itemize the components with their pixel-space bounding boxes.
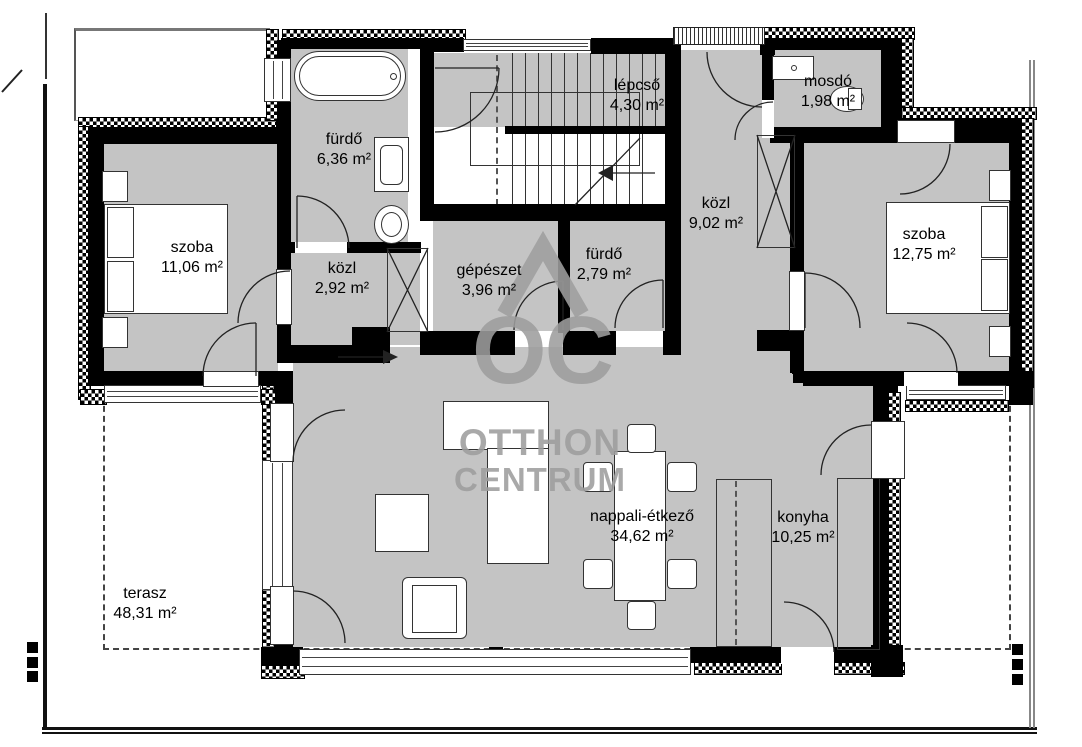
nightstand-icon [102, 171, 128, 202]
door-frame [897, 120, 955, 143]
window [906, 385, 1006, 400]
plan-graphic: nappali-étkező [590, 507, 694, 527]
window [299, 649, 691, 675]
room-label-lepcso: lépcső4,30 m² [610, 76, 664, 116]
room-label-kozl-2: közl2,92 m² [315, 259, 369, 299]
insulation-hatch [888, 392, 901, 424]
plan-graphic: konyha [771, 508, 834, 528]
pillow-icon [107, 261, 134, 312]
carport-area [74, 28, 270, 121]
plan-graphic: terasz [113, 584, 176, 604]
room-label-gepeszet: gépészet3,96 m² [457, 261, 522, 301]
pillow-icon [981, 259, 1008, 311]
pillow-icon [981, 206, 1008, 258]
plan-graphic: fürdő [577, 245, 631, 265]
chair-icon [667, 462, 697, 492]
wall-segment [663, 331, 681, 355]
wall-segment [420, 38, 464, 52]
plan-graphic: 11,06 m² [161, 258, 223, 278]
room-label-terasz: terasz48,31 m² [113, 584, 176, 624]
wall-segment [591, 38, 675, 54]
plan-graphic: 48,31 m² [113, 604, 176, 624]
wall-segment [420, 204, 681, 221]
door-gap [295, 242, 347, 253]
pillow-icon [107, 207, 134, 258]
property-line-bottom-2 [42, 732, 1037, 734]
plan-graphic: fürdő [317, 130, 371, 150]
plan-graphic: 3,96 m² [457, 281, 522, 301]
section-marker [1012, 659, 1023, 670]
entry-door [673, 27, 765, 45]
door-gap [781, 648, 834, 664]
faucet-icon [390, 73, 397, 80]
wall-segment [277, 345, 390, 363]
door-frame [871, 421, 905, 479]
plan-graphic: gépészet [457, 261, 522, 281]
washing-machine-inner [380, 145, 403, 185]
room-label-szoba-1: szoba11,06 m² [161, 238, 223, 278]
toilet-inner [381, 212, 402, 237]
chair-icon [627, 601, 656, 630]
plan-graphic: szoba [161, 238, 223, 258]
wardrobe-icon [757, 135, 795, 248]
wall-segment [690, 647, 781, 663]
window [264, 58, 291, 102]
room-label-konyha: konyha10,25 m² [771, 508, 834, 548]
watermark-oc: OC [472, 296, 612, 406]
door-frame [270, 586, 294, 645]
window [262, 460, 293, 590]
terrace-door-frame [203, 371, 259, 387]
plan-graphic: közl [689, 194, 743, 214]
insulation-hatch [1021, 118, 1034, 388]
plan-graphic [2, 70, 22, 92]
chair-icon [627, 424, 656, 453]
property-line-bottom [42, 727, 1037, 730]
coffee-table-icon [375, 494, 429, 552]
plan-graphic: 10,25 m² [771, 528, 834, 548]
wall-segment [873, 375, 898, 393]
section-marker [27, 657, 38, 668]
plan-graphic: lépcső [610, 76, 664, 96]
window [104, 385, 261, 403]
window [463, 39, 591, 51]
chair-icon [667, 559, 697, 589]
section-marker [27, 671, 38, 682]
wall-segment [1009, 371, 1033, 405]
insulation-hatch [80, 389, 107, 405]
nightstand-icon [989, 326, 1011, 357]
plan-graphic: 4,30 m² [610, 96, 664, 116]
plan-graphic: 2,79 m² [577, 265, 631, 285]
insulation-hatch [694, 662, 782, 675]
property-line-left-thin [45, 13, 47, 79]
closet-icon [387, 248, 428, 332]
nightstand-icon [989, 170, 1011, 201]
property-line-left [43, 84, 47, 729]
section-marker [1012, 644, 1023, 655]
plan-graphic: 34,62 m² [590, 527, 694, 547]
room-label-kozl-9: közl9,02 m² [689, 194, 743, 234]
room-label-szoba-2: szoba12,75 m² [892, 225, 955, 265]
door-gap [762, 100, 774, 138]
wall-segment [88, 371, 293, 386]
sink-drain [791, 65, 797, 71]
watermark-centrum: CENTRUM [454, 461, 626, 499]
section-marker [27, 642, 38, 653]
insulation-hatch [888, 478, 901, 652]
wall-segment [793, 371, 878, 383]
wall-segment [762, 38, 883, 50]
insulation-hatch [905, 400, 1009, 412]
wall-segment [505, 126, 667, 134]
plan-graphic: 6,36 m² [317, 150, 371, 170]
plan-graphic: 1,98 m² [801, 92, 855, 112]
room-label-furdo-1: fürdő6,36 m² [317, 130, 371, 170]
plan-graphic: közl [315, 259, 369, 279]
room-label-mosdo: mosdó1,98 m² [801, 72, 855, 112]
door-frame [276, 269, 292, 325]
wall-segment [757, 330, 802, 351]
chair-icon [583, 559, 613, 589]
stair-dashed-line [496, 55, 498, 205]
watermark-otthon: OTTHON [459, 422, 621, 464]
kitchen-counter-icon [837, 478, 880, 650]
armchair-seat [412, 585, 457, 633]
wall-segment [281, 38, 434, 49]
bathtub-inner [299, 56, 401, 96]
wall-segment [261, 647, 303, 665]
door-gap [904, 372, 958, 386]
plan-graphic: mosdó [801, 72, 855, 92]
wall-segment [420, 48, 434, 212]
room-label-furdo-2: fürdő2,79 m² [577, 245, 631, 285]
door-frame [789, 271, 805, 331]
plan-graphic: 12,75 m² [892, 245, 955, 265]
section-marker [1012, 674, 1023, 685]
room-label-nappali: nappali-étkező34,62 m² [590, 507, 694, 547]
plan-graphic: szoba [892, 225, 955, 245]
plan-graphic: 2,92 m² [315, 279, 369, 299]
plan-graphic: 9,02 m² [689, 214, 743, 234]
floorplan-canvas: OC OTTHON CENTRUM szoba11,06 m² fürdő6,3… [0, 0, 1082, 747]
wall-segment [665, 38, 681, 333]
wall-segment [873, 392, 889, 422]
nightstand-icon [102, 317, 128, 348]
wall-segment [88, 127, 291, 144]
kitchen-island-icon [716, 479, 772, 647]
door-frame [270, 403, 294, 462]
island-divider [735, 481, 737, 645]
wall-segment [352, 327, 390, 347]
